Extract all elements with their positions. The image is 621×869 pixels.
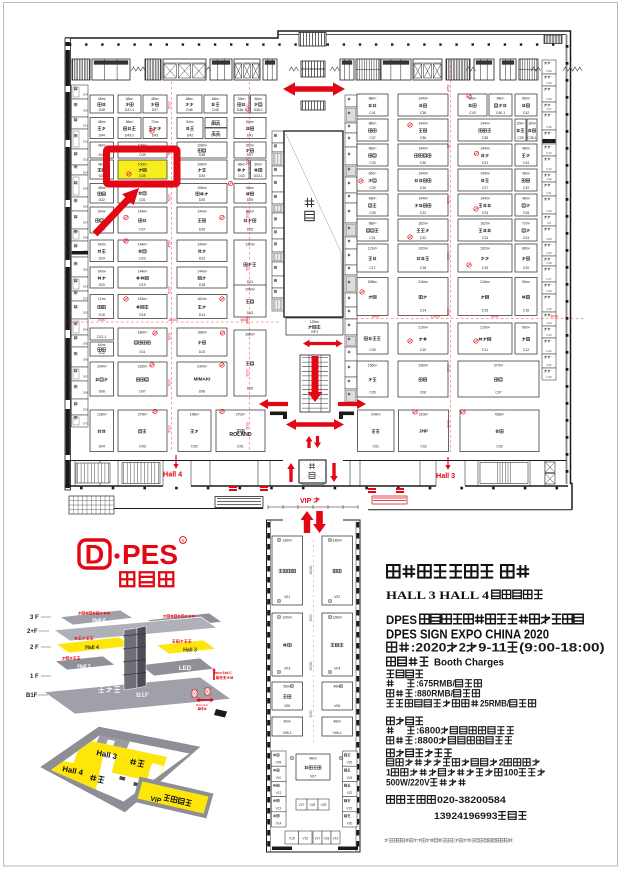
svg-text:48m²: 48m²: [522, 172, 531, 176]
svg-text:136m²: 136m²: [332, 539, 342, 543]
svg-text:C12: C12: [546, 349, 552, 353]
svg-text:DPES: DPES: [386, 613, 417, 627]
svg-text:C16: C16: [546, 289, 552, 293]
svg-text:D67: D67: [83, 375, 89, 379]
svg-text:C12: C12: [546, 177, 552, 181]
svg-text:16m²: 16m²: [528, 122, 537, 126]
svg-text:V17: V17: [315, 837, 321, 841]
svg-text:C39: C39: [517, 136, 523, 140]
svg-text:162m²: 162m²: [418, 222, 428, 226]
svg-text:C27: C27: [482, 186, 488, 190]
svg-text:D23: D23: [139, 256, 145, 260]
svg-text:V22: V22: [347, 791, 353, 795]
svg-text:C43: C43: [469, 111, 475, 115]
svg-text:C17: C17: [546, 107, 552, 111]
svg-text:144m²: 144m²: [138, 270, 148, 274]
svg-text:C11: C11: [547, 191, 552, 195]
svg-text:144m²: 144m²: [480, 147, 490, 151]
svg-text:V12: V12: [276, 791, 282, 795]
svg-text:88m²: 88m²: [369, 122, 378, 126]
svg-text:D12-1: D12-1: [97, 335, 106, 339]
svg-text:C9: C9: [547, 221, 551, 225]
svg-text:C05: C05: [369, 390, 375, 394]
svg-text:V16: V16: [302, 837, 308, 841]
svg-text:96m²: 96m²: [522, 326, 531, 330]
svg-text:48m²: 48m²: [98, 120, 107, 124]
svg-text:20m²: 20m²: [517, 122, 526, 126]
svg-text:C38: C38: [420, 111, 426, 115]
svg-text:D27: D27: [139, 227, 145, 231]
svg-text:48m²: 48m²: [98, 186, 107, 190]
svg-text:V28: V28: [310, 803, 316, 807]
svg-text:C16: C16: [523, 309, 529, 313]
svg-text:C24: C24: [523, 236, 529, 240]
svg-text:D37: D37: [247, 153, 253, 157]
svg-text:144m²: 144m²: [197, 243, 207, 247]
svg-text:64m²: 64m²: [98, 343, 107, 347]
svg-text:C11: C11: [482, 348, 488, 352]
svg-text:C03: C03: [496, 444, 502, 448]
svg-text::880RMB/: :880RMB/: [414, 689, 453, 699]
svg-text:D63: D63: [83, 311, 89, 315]
svg-text:D69: D69: [83, 408, 89, 412]
svg-text:8000: 8000: [491, 315, 499, 319]
svg-text:C07: C07: [495, 390, 501, 394]
svg-text:V25: V25: [347, 761, 353, 765]
svg-text:30m²: 30m²: [254, 162, 263, 166]
svg-text:64m²: 64m²: [98, 210, 107, 214]
svg-text:C23: C23: [482, 211, 488, 215]
svg-text:2: 2: [499, 758, 504, 768]
svg-text:D65: D65: [83, 342, 89, 346]
svg-text:C25: C25: [369, 211, 375, 215]
svg-text:C10: C10: [420, 348, 426, 352]
svg-text:232m²: 232m²: [138, 365, 148, 369]
svg-text:D60: D60: [83, 268, 89, 272]
svg-text:D42-1: D42-1: [211, 123, 220, 127]
svg-text:Hall 3: Hall 3: [183, 648, 197, 654]
svg-text:D55: D55: [83, 187, 89, 191]
svg-text:V05: V05: [284, 704, 290, 708]
svg-text:36m²: 36m²: [254, 97, 263, 101]
svg-text:D20: D20: [99, 283, 105, 287]
svg-text:108m²: 108m²: [197, 162, 207, 166]
svg-text:162m²: 162m²: [480, 222, 490, 226]
svg-text:195m²: 195m²: [245, 288, 255, 292]
svg-text:C19: C19: [546, 251, 552, 255]
svg-text:D53: D53: [83, 158, 89, 162]
svg-text:D03: D03: [139, 444, 145, 448]
svg-text:V29: V29: [321, 803, 327, 807]
svg-text:144m²: 144m²: [418, 122, 428, 126]
svg-text:D05: D05: [247, 386, 253, 390]
svg-text:48m²: 48m²: [186, 97, 195, 101]
svg-text:68m²: 68m²: [246, 186, 255, 190]
svg-text:VIP: VIP: [300, 498, 312, 505]
svg-text:54m²: 54m²: [186, 120, 195, 124]
svg-text:162m²: 162m²: [138, 297, 148, 301]
svg-text:Hall 3: Hall 3: [436, 471, 455, 480]
svg-text:144m²: 144m²: [480, 197, 490, 201]
svg-text:C19: C19: [482, 266, 488, 270]
svg-text:D44: D44: [99, 133, 105, 137]
svg-text:D42: D42: [187, 133, 193, 137]
svg-text:D38: D38: [199, 153, 205, 157]
svg-text:B1F: B1F: [26, 693, 38, 699]
svg-text:MIMAKI: MIMAKI: [194, 377, 211, 382]
svg-text:D64: D64: [83, 328, 89, 332]
svg-text:D06: D06: [199, 390, 205, 394]
svg-text:V21: V21: [347, 806, 353, 810]
svg-text:2 F: 2 F: [30, 645, 39, 651]
svg-text:5000: 5000: [550, 315, 558, 319]
svg-text:195m²: 195m²: [190, 413, 200, 417]
svg-text:270m²: 270m²: [138, 413, 148, 417]
svg-text:D16: D16: [99, 313, 105, 317]
svg-text:Hall 4: Hall 4: [85, 645, 99, 651]
svg-text:V18: V18: [324, 837, 330, 841]
svg-text:5000: 5000: [167, 379, 171, 387]
svg-text:D22: D22: [199, 256, 205, 260]
svg-text:5000: 5000: [245, 263, 249, 271]
svg-text:5000: 5000: [245, 422, 249, 430]
svg-text:C15: C15: [546, 307, 552, 311]
svg-text:5000: 5000: [241, 318, 249, 322]
svg-text:D58: D58: [83, 236, 89, 240]
svg-text:Hall 2: Hall 2: [77, 664, 91, 670]
svg-text:V01: V01: [284, 595, 290, 599]
svg-text:D50: D50: [83, 109, 89, 113]
svg-text:5000: 5000: [245, 369, 249, 377]
svg-text:C14: C14: [546, 151, 552, 155]
svg-text:18000: 18000: [168, 318, 178, 322]
svg-text:C23: C23: [482, 236, 488, 240]
svg-text:2+F: 2+F: [27, 629, 38, 635]
svg-text:11000: 11000: [431, 315, 440, 319]
svg-text:48m²: 48m²: [333, 719, 342, 723]
svg-text:48m²: 48m²: [369, 197, 378, 201]
svg-text:C40-1: C40-1: [496, 111, 505, 115]
svg-text:120m²: 120m²: [310, 320, 320, 324]
svg-text:3000: 3000: [446, 308, 450, 316]
svg-text:180m²: 180m²: [138, 331, 148, 335]
svg-text:4500: 4500: [245, 105, 249, 113]
svg-text:108m²: 108m²: [197, 144, 207, 148]
svg-text:D61: D61: [83, 285, 89, 289]
svg-text:C22: C22: [420, 236, 426, 240]
svg-text:36m²: 36m²: [126, 120, 135, 124]
svg-text:68m²: 68m²: [369, 147, 378, 151]
svg-text:192m²: 192m²: [480, 247, 490, 251]
svg-text:DPES SIGN EXPO CHINA 2020: DPES SIGN EXPO CHINA 2020: [386, 627, 549, 642]
svg-text:D33-1: D33-1: [254, 174, 263, 178]
svg-text:156m²: 156m²: [368, 364, 378, 368]
svg-text:128m²: 128m²: [332, 616, 342, 620]
svg-text:88m²: 88m²: [522, 247, 531, 251]
svg-text:5000: 5000: [245, 210, 249, 218]
svg-text:C35: C35: [482, 136, 488, 140]
svg-text:D43-2: D43-2: [125, 133, 134, 137]
svg-text:D18: D18: [199, 283, 205, 287]
svg-text:88m²: 88m²: [469, 97, 478, 101]
svg-text:C22: C22: [420, 211, 426, 215]
svg-text:V05-1: V05-1: [283, 731, 292, 735]
svg-text:D48: D48: [99, 108, 105, 112]
svg-text:72m²: 72m²: [522, 222, 531, 226]
svg-text:C09: C09: [369, 348, 375, 352]
svg-text:C34: C34: [523, 161, 529, 165]
svg-text:D02: D02: [191, 444, 197, 448]
svg-text:C41: C41: [369, 111, 375, 115]
svg-text:V20: V20: [347, 822, 353, 826]
svg-text:4750: 4750: [167, 240, 171, 248]
svg-text:C20: C20: [546, 237, 552, 241]
svg-text:C18: C18: [546, 261, 552, 265]
svg-text:236m²: 236m²: [418, 364, 428, 368]
svg-text:D07: D07: [139, 390, 145, 394]
svg-text:144m²: 144m²: [418, 197, 428, 201]
svg-text:D52: D52: [83, 140, 89, 144]
svg-text:V04: V04: [334, 667, 340, 671]
svg-text:48m²: 48m²: [212, 97, 221, 101]
svg-text:100m²: 100m²: [138, 162, 148, 166]
svg-text:V13: V13: [276, 806, 282, 810]
svg-text:144m²: 144m²: [197, 210, 207, 214]
svg-text:88m²: 88m²: [369, 97, 378, 101]
svg-text:168m²: 168m²: [197, 331, 207, 335]
svg-text:C37: C37: [369, 136, 375, 140]
svg-text:D47: D47: [152, 108, 158, 112]
svg-text:C17: C17: [546, 277, 552, 281]
svg-text:C21: C21: [369, 236, 375, 240]
svg-text:132m²: 132m²: [245, 243, 255, 247]
svg-text:C01: C01: [373, 444, 379, 448]
svg-text:108m²: 108m²: [197, 186, 207, 190]
svg-text:100: 100: [504, 768, 519, 778]
svg-text:D54: D54: [83, 171, 89, 175]
svg-text:5000: 5000: [309, 710, 313, 717]
svg-text:66m²: 66m²: [246, 120, 255, 124]
svg-text:C39-1: C39-1: [527, 136, 536, 140]
svg-text:C13: C13: [546, 167, 552, 171]
svg-text:Booth Charges: Booth Charges: [434, 657, 504, 669]
svg-text:D46: D46: [186, 108, 192, 112]
svg-text:48m²: 48m²: [98, 97, 107, 101]
svg-text:270m²: 270m²: [236, 413, 246, 417]
svg-text:D45: D45: [212, 108, 218, 112]
svg-text:D14: D14: [199, 313, 205, 317]
svg-text:D10: D10: [199, 350, 205, 354]
svg-text:D34: D34: [199, 174, 205, 178]
svg-text:D57: D57: [83, 221, 89, 225]
svg-text:C14: C14: [420, 309, 426, 313]
svg-text::6800: :6800: [416, 726, 440, 736]
svg-text:65m²: 65m²: [369, 172, 378, 176]
svg-text:8000: 8000: [446, 196, 450, 204]
svg-text:Metro Exit C: Metro Exit C: [213, 671, 232, 675]
svg-text:136m²: 136m²: [282, 539, 292, 543]
svg-text:V06: V06: [334, 704, 340, 708]
svg-text:C16: C16: [546, 125, 552, 129]
svg-text:D13: D13: [247, 311, 253, 315]
svg-text:020-38200584: 020-38200584: [437, 795, 507, 806]
svg-text:48m²: 48m²: [309, 757, 318, 761]
svg-text:128m²: 128m²: [97, 413, 107, 417]
svg-text:D19: D19: [139, 283, 145, 287]
svg-text:C13: C13: [546, 333, 552, 337]
svg-text:5000: 5000: [167, 101, 171, 109]
svg-text:144m²: 144m²: [418, 172, 428, 176]
svg-text:9-11: 9-11: [478, 641, 507, 655]
svg-text:D12: D12: [99, 351, 105, 355]
svg-text:4750: 4750: [446, 84, 450, 92]
svg-text:48m²: 48m²: [522, 147, 531, 151]
svg-text:D32: D32: [99, 198, 105, 202]
svg-text:C10: C10: [546, 209, 552, 213]
svg-text:72m²: 72m²: [151, 120, 160, 124]
svg-text:V24: V24: [347, 776, 353, 780]
svg-text:192m²: 192m²: [418, 247, 428, 251]
svg-text:64m²: 64m²: [98, 243, 107, 247]
svg-text:D42-2: D42-2: [211, 134, 220, 138]
svg-text:D08: D08: [99, 390, 105, 394]
svg-text:Hall 4: Hall 4: [163, 470, 182, 479]
svg-text:15200: 15200: [309, 661, 313, 670]
svg-text:C36: C36: [420, 136, 426, 140]
svg-text:D62: D62: [83, 297, 89, 301]
svg-text:3 F: 3 F: [30, 615, 39, 621]
svg-text:162m²: 162m²: [197, 297, 207, 301]
svg-text:D70: D70: [83, 422, 89, 426]
svg-text:D39: D39: [139, 153, 145, 157]
svg-text:C02: C02: [420, 444, 426, 448]
svg-text:144m²: 144m²: [480, 122, 490, 126]
svg-text:D31: D31: [139, 198, 145, 202]
svg-text:V03: V03: [284, 667, 290, 671]
svg-text:C32: C32: [523, 186, 529, 190]
svg-text:104m²: 104m²: [97, 365, 107, 369]
svg-text:96m²: 96m²: [522, 280, 531, 284]
svg-text:D30: D30: [199, 198, 205, 202]
svg-text:5000: 5000: [98, 318, 106, 322]
svg-text:5000: 5000: [167, 286, 171, 294]
svg-text:500W/220V: 500W/220V: [386, 778, 430, 788]
svg-text:13924196993: 13924196993: [434, 811, 498, 822]
svg-text:377m²: 377m²: [494, 364, 504, 368]
svg-text:98m²: 98m²: [369, 222, 378, 226]
svg-text:48m²: 48m²: [151, 97, 160, 101]
svg-text:C28: C28: [523, 211, 529, 215]
svg-text:C29: C29: [369, 186, 375, 190]
svg-text:1: 1: [386, 768, 391, 778]
svg-text:3000: 3000: [446, 364, 450, 372]
svg-text:D43: D43: [152, 133, 158, 137]
svg-text:5000: 5000: [245, 157, 249, 165]
svg-text:V10: V10: [276, 776, 282, 780]
svg-text:(9:00-18:00): (9:00-18:00): [519, 641, 605, 655]
svg-text:B1F: B1F: [136, 692, 149, 699]
svg-text:Metro Exit: Metro Exit: [196, 703, 208, 707]
svg-text:25RMB/: 25RMB/: [480, 699, 510, 709]
svg-text:216m²: 216m²: [418, 280, 428, 284]
svg-text:D35: D35: [139, 174, 145, 178]
svg-text:C14: C14: [546, 321, 552, 325]
svg-text:120m²: 120m²: [282, 616, 292, 620]
svg-text:JHP: JHP: [419, 428, 428, 433]
svg-text:8000: 8000: [446, 420, 450, 428]
svg-text:234m²: 234m²: [197, 365, 207, 369]
svg-text:40m²: 40m²: [283, 719, 292, 723]
svg-text:D04: D04: [99, 444, 105, 448]
svg-text:VIP1: VIP1: [311, 330, 318, 334]
svg-text:D26: D26: [199, 227, 205, 231]
svg-text:16000: 16000: [309, 565, 313, 574]
svg-text:D49: D49: [83, 93, 89, 97]
svg-text:435m²: 435m²: [495, 413, 505, 417]
svg-text:210m²: 210m²: [419, 413, 429, 417]
svg-text:C33: C33: [369, 161, 375, 165]
svg-text:D24: D24: [99, 256, 105, 260]
svg-text:216m²: 216m²: [480, 280, 490, 284]
svg-text:D41: D41: [247, 133, 253, 137]
svg-text:C11: C11: [547, 363, 552, 367]
svg-text:C26: C26: [420, 186, 426, 190]
svg-text::675RMB/: :675RMB/: [416, 679, 455, 689]
svg-text:C15: C15: [546, 139, 552, 143]
svg-text:48m²: 48m²: [126, 97, 135, 101]
svg-text:C15: C15: [482, 309, 488, 313]
svg-text::8800: :8800: [414, 736, 438, 746]
svg-text:8000: 8000: [372, 315, 380, 319]
svg-text:C18: C18: [420, 266, 426, 270]
svg-text:144m²: 144m²: [197, 270, 207, 274]
svg-text:C19: C19: [546, 81, 552, 85]
svg-text:219m²: 219m²: [418, 326, 428, 330]
svg-text:144m²: 144m²: [480, 172, 490, 176]
svg-text:3000: 3000: [446, 252, 450, 260]
svg-text:48m²: 48m²: [522, 197, 531, 201]
svg-text:66m²: 66m²: [246, 144, 255, 148]
svg-text:D45-1: D45-1: [254, 108, 263, 112]
svg-text:C06: C06: [420, 390, 426, 394]
svg-text:C18: C18: [546, 97, 552, 101]
svg-text:64m²: 64m²: [497, 97, 506, 101]
svg-text:Hall 6: Hall 6: [92, 618, 106, 624]
svg-text:C20: C20: [546, 69, 552, 73]
svg-text:144m²: 144m²: [138, 243, 148, 247]
svg-text:C42: C42: [523, 111, 529, 115]
svg-text:12m²: 12m²: [98, 297, 107, 301]
svg-text:LED: LED: [179, 665, 192, 672]
svg-text:V09: V09: [276, 761, 282, 765]
svg-text:33m²: 33m²: [238, 97, 247, 101]
svg-text:144m²: 144m²: [418, 147, 428, 151]
svg-text:C31: C31: [482, 161, 488, 165]
svg-text:2: 2: [459, 641, 466, 655]
svg-text:V19: V19: [333, 837, 339, 841]
svg-text:C20: C20: [523, 266, 529, 270]
svg-text:144m²: 144m²: [138, 210, 148, 214]
svg-text:216m²: 216m²: [480, 326, 490, 330]
svg-text:C12: C12: [523, 348, 529, 352]
svg-text:D56: D56: [83, 205, 89, 209]
svg-text:D68: D68: [83, 391, 89, 395]
svg-text:D25: D25: [247, 227, 253, 231]
svg-text:C17: C17: [369, 266, 375, 270]
svg-text:D21: D21: [247, 280, 253, 284]
svg-text:V14: V14: [276, 822, 282, 826]
svg-text:5000: 5000: [167, 333, 171, 341]
